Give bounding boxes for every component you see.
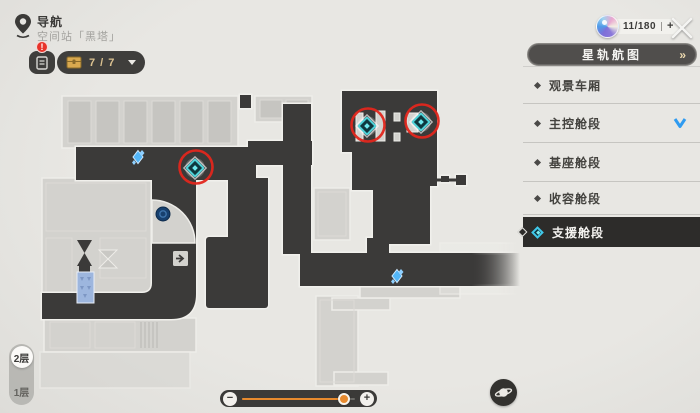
currency-counter: 11/180 + <box>596 15 681 38</box>
currency-count: 11/180 <box>623 21 656 32</box>
tracker-button[interactable] <box>29 51 55 74</box>
chest-count: 7 / 7 <box>89 57 115 69</box>
chest-counter-dropdown[interactable]: 7 / 7 <box>57 51 145 74</box>
map-zoom-slider[interactable]: − + <box>220 390 377 407</box>
divider <box>661 22 662 31</box>
sidebar-item-label: 观景车厢 <box>549 77 601 94</box>
current-location-label: 空间站「黑塔」 <box>37 28 121 44</box>
diamond-bullet-icon <box>534 119 541 126</box>
exit-arrow-icon <box>173 251 188 266</box>
sidebar-item-1[interactable]: 观景车厢 <box>523 66 700 104</box>
floor-switcher: 2层 1层 <box>9 344 34 405</box>
chest-icon <box>66 56 82 69</box>
sidebar-item-label: 收容舱段 <box>549 190 601 207</box>
sidebar-item-2[interactable]: 主控舱段 <box>523 104 700 143</box>
current-location-chevron-icon <box>673 117 687 129</box>
diamond-bullet-icon <box>534 158 541 165</box>
zoom-knob[interactable] <box>338 393 350 405</box>
floor-button-2[interactable]: 2层 <box>11 346 33 368</box>
emblem-icon <box>156 207 170 221</box>
sidebar-item-label: 基座舱段 <box>549 154 601 171</box>
map-screen: 导航 空间站「黑塔」 ! 7 / 7 11/180 + 星轨航图 » 观景车厢主… <box>0 0 700 413</box>
planet-icon <box>494 383 513 402</box>
alert-badge: ! <box>36 41 48 53</box>
teleport-diamond-icon <box>531 226 544 239</box>
sidebar-item-label: 主控舱段 <box>549 115 601 132</box>
sidebar-item-3[interactable]: 基座舱段 <box>523 143 700 182</box>
elevator <box>77 272 94 303</box>
close-icon <box>673 19 691 37</box>
sidebar-item-5[interactable]: 支援舱段 <box>523 217 700 247</box>
chevron-down-icon <box>128 60 136 65</box>
area-list: 观景车厢主控舱段基座舱段收容舱段支援舱段 <box>523 66 700 247</box>
zoom-track-fill <box>242 398 344 401</box>
trailblaze-power-icon <box>596 15 619 38</box>
zoom-in-button[interactable]: + <box>360 392 374 406</box>
diamond-bullet-icon <box>534 194 541 201</box>
planet-view-button[interactable] <box>490 379 517 406</box>
close-button[interactable] <box>670 16 694 40</box>
journal-icon <box>36 56 48 70</box>
location-pin-icon <box>13 12 33 40</box>
star-rail-chart-button[interactable]: 星轨航图 » <box>527 43 697 66</box>
floor-button-1[interactable]: 1层 <box>11 380 33 402</box>
zoom-out-button[interactable]: − <box>223 392 237 406</box>
double-arrow-icon: » <box>679 48 685 62</box>
diamond-bullet-icon <box>534 81 541 88</box>
chart-button-label: 星轨航图 <box>528 46 696 63</box>
sidebar-item-4[interactable]: 收容舱段 <box>523 182 700 215</box>
sidebar-item-label: 支援舱段 <box>552 224 604 241</box>
